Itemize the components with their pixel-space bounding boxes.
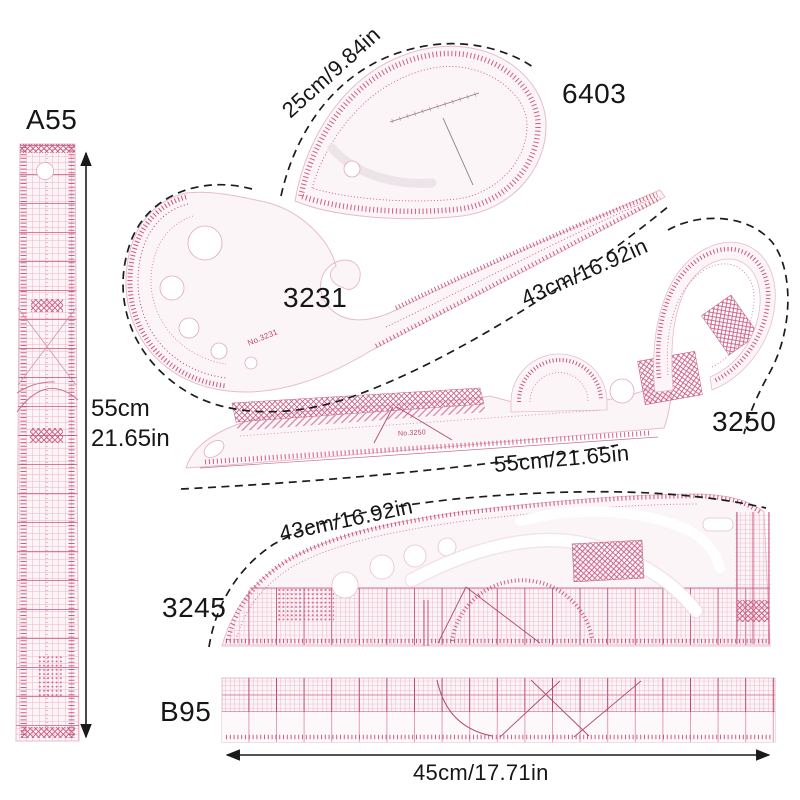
label-b95-model: B95 (160, 698, 211, 726)
label-3231-model: 3231 (283, 284, 347, 312)
label-a55-model: A55 (26, 106, 77, 134)
label-a55-dimension-in: 21.65in (91, 424, 170, 454)
ruler-a55 (16, 144, 79, 741)
label-b95-dimension: 45cm/17.71in (413, 762, 549, 784)
product-image: A55 55cm 21.65in 25cm/9.84in 6403 3231 N… (0, 0, 800, 800)
label-3245-model: 3245 (162, 594, 226, 622)
marking-3250: No.3250 (398, 429, 426, 437)
label-6403-model: 6403 (562, 80, 626, 108)
label-a55-dimension-cm: 55cm (91, 394, 150, 424)
label-3250-model: 3250 (712, 408, 776, 436)
ruler-b95 (222, 678, 775, 742)
